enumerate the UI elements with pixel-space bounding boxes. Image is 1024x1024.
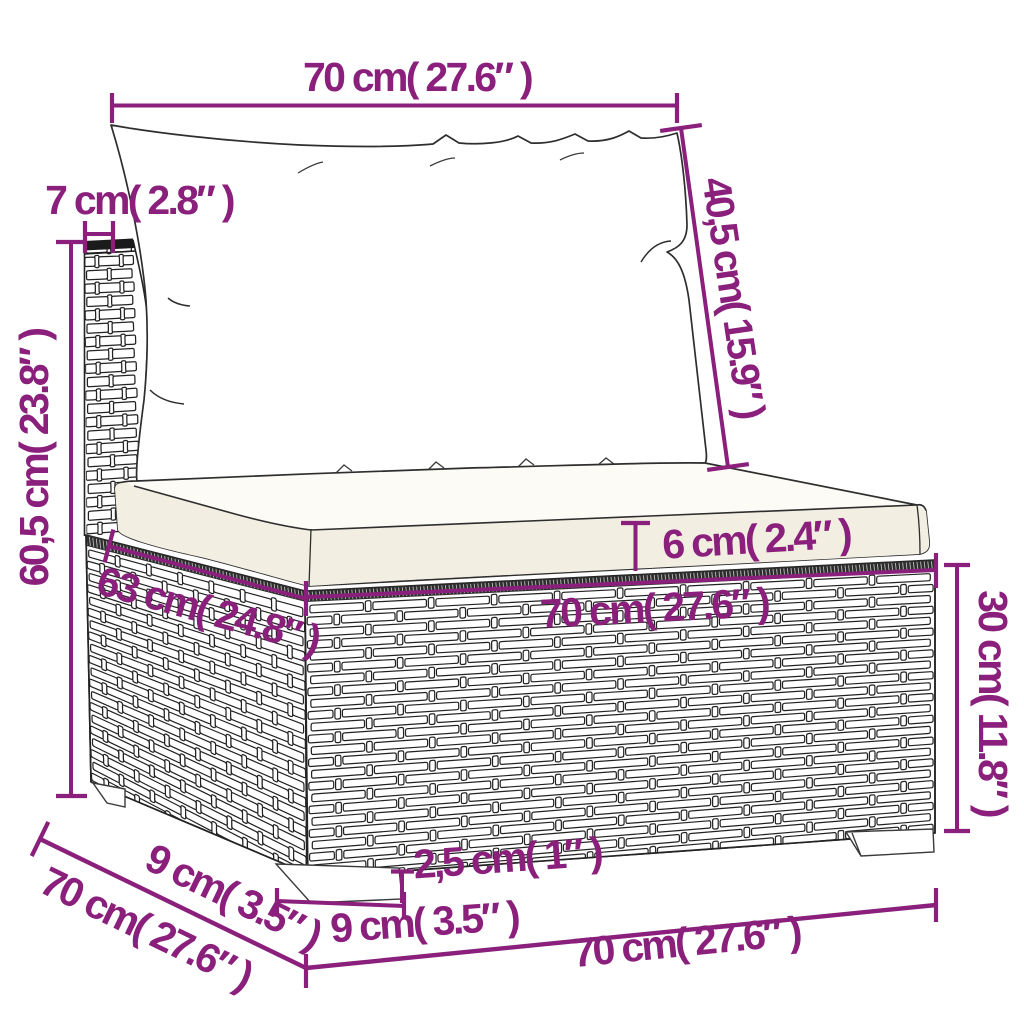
svg-text:7 cm( 2.8″ ): 7 cm( 2.8″ ) xyxy=(45,177,234,223)
svg-text:70 cm( 27.6″ ): 70 cm( 27.6″ ) xyxy=(570,908,802,977)
svg-text:60,5 cm( 23.8″ ): 60,5 cm( 23.8″ ) xyxy=(11,329,57,587)
svg-text:70 cm( 27.6″ ): 70 cm( 27.6″ ) xyxy=(303,54,532,100)
svg-text:30 cm( 11.8″ ): 30 cm( 11.8″ ) xyxy=(970,590,1016,817)
